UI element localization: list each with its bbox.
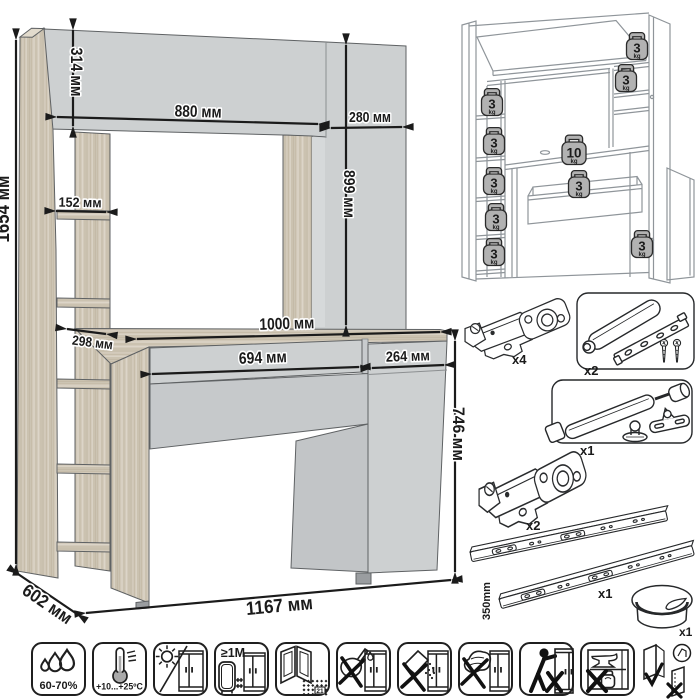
svg-text:21: 21 [316, 688, 324, 695]
svg-text:350mm: 350mm [481, 582, 493, 620]
svg-text:694 мм: 694 мм [239, 348, 288, 368]
svg-text:899 мм: 899 мм [340, 170, 357, 218]
svg-text:1000 мм: 1000 мм [259, 314, 315, 334]
svg-text:x1: x1 [598, 586, 612, 601]
svg-text:880 мм: 880 мм [174, 102, 221, 121]
svg-text:152 мм: 152 мм [58, 195, 101, 211]
svg-text:x2: x2 [584, 363, 598, 378]
svg-text:280 мм: 280 мм [349, 110, 391, 126]
svg-text:+10...+25ºC: +10...+25ºC [96, 682, 143, 692]
svg-text:x4: x4 [512, 352, 527, 367]
svg-text:≥1M: ≥1M [221, 646, 245, 660]
svg-text:60-70%: 60-70% [40, 680, 78, 692]
svg-text:x1: x1 [580, 443, 594, 458]
svg-text:x2: x2 [526, 518, 540, 533]
svg-text:264 мм: 264 мм [386, 348, 431, 366]
svg-text:746 мм: 746 мм [449, 407, 467, 461]
svg-text:1654 мм: 1654 мм [0, 176, 14, 243]
svg-text:x1: x1 [679, 625, 693, 639]
svg-text:314 мм: 314 мм [67, 48, 86, 97]
